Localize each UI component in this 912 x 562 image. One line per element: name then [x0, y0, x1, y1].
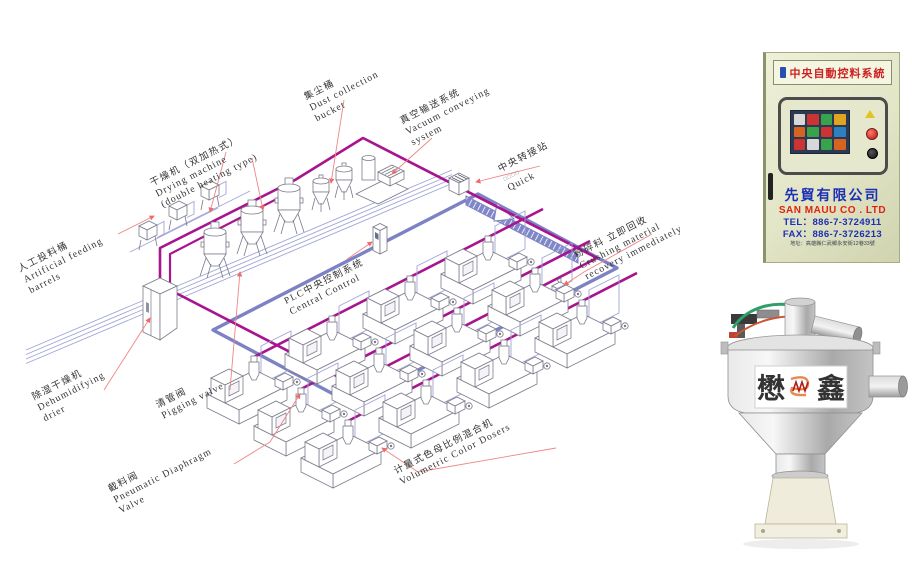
- leader-lines: [104, 100, 652, 472]
- company-name-en: SAN MAUU CO . LTD: [766, 205, 899, 218]
- door-handle: [768, 173, 773, 200]
- label-vacuum: 真空输送系统 Vacuum conveying system: [398, 74, 497, 148]
- company-address: 地址：高雄縣仁武鄉永安街12巷33號: [769, 241, 895, 248]
- company-tel: TEL：886-7-3724911: [766, 217, 899, 229]
- plc-control-box: [373, 224, 387, 255]
- dehumidifying-drier: [143, 278, 177, 340]
- base-pedestal: [755, 478, 847, 538]
- header-mark-icon: [780, 67, 786, 78]
- label-dehumidifier: 除湿干燥机 Dehumidifying drier: [30, 358, 112, 424]
- cabinet-header-text: 中央自動控料系統: [790, 65, 886, 81]
- brand-char-right: 鑫: [817, 372, 845, 405]
- screenshot-root: 人工投料桶 Artificial feeding barrels 干燥机（双加热…: [0, 0, 912, 562]
- company-name-zh: 先貿有限公司: [766, 187, 899, 205]
- cabinet-header: 中央自動控料系統: [773, 60, 892, 85]
- hopper-loader-photo: 懋 鑫: [703, 290, 912, 562]
- conveying-system-diagram: 人工投料桶 Artificial feeding barrels 干燥机（双加热…: [0, 0, 740, 562]
- hmi-screen: [790, 110, 850, 154]
- cabinet-company-block: 先貿有限公司 SAN MAUU CO . LTD TEL：886-7-37249…: [766, 187, 899, 248]
- brand-plate: 懋 鑫: [755, 366, 847, 408]
- dust-collectors: [312, 163, 353, 212]
- touch-panel: [778, 97, 888, 175]
- label-feeding: 人工投料桶 Artificial feeding barrels: [16, 224, 110, 296]
- label-diaphragm-valve: 截料阀 Pneumatic Diaphragm Valve: [106, 435, 219, 516]
- central-transfer-station: [449, 173, 469, 195]
- label-dust: 集尘桶 Dust collection bucket: [302, 57, 386, 124]
- photo-shadow: [743, 539, 859, 549]
- svg-text:中央转接站: 中央转接站: [496, 139, 550, 175]
- power-button: [867, 148, 878, 159]
- company-fax: FAX：886-7-3726213: [766, 229, 899, 241]
- indicator-triangle-icon: [865, 110, 875, 118]
- red-indicator-lamp: [866, 128, 878, 140]
- label-drying: 干燥机（双加热式） Drying machine (double heating…: [148, 129, 260, 210]
- brand-char-left: 懋: [757, 373, 785, 405]
- outlet-pipe: [869, 376, 903, 397]
- label-transfer-station: 中央转接站 □□□□ Quick: [496, 139, 560, 193]
- control-cabinet-photo: 中央自動控料系統 先貿有限公司 SAN MAUU CO . LTD TEL：88…: [763, 52, 900, 263]
